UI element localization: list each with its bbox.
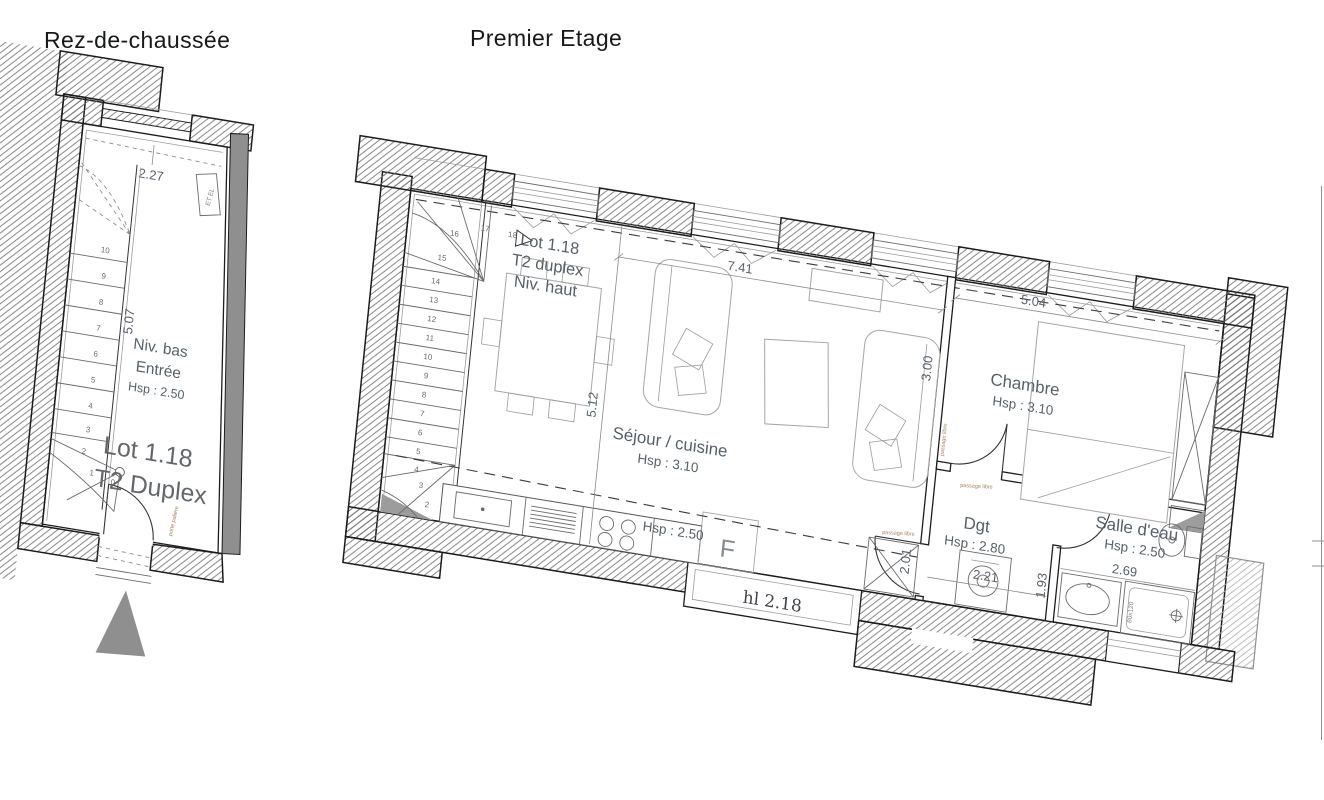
svg-text:13: 13 <box>429 295 439 305</box>
svg-text:16: 16 <box>450 228 460 238</box>
gf-wall-top-left-pier <box>61 94 103 126</box>
svg-text:10: 10 <box>423 352 433 362</box>
direction-arrow <box>96 587 152 661</box>
dim-bath-width: 1.93 <box>1033 572 1050 600</box>
sheet-frame <box>1312 186 1324 740</box>
svg-text:17: 17 <box>480 223 490 233</box>
coffee-table <box>756 333 837 435</box>
sofa <box>851 328 941 490</box>
first-floor-plan: hl 2.18 passage libre passage libre pass… <box>315 136 1292 731</box>
bed <box>1020 322 1184 523</box>
svg-text:10: 10 <box>100 245 110 255</box>
partition-bedroom-south-a <box>936 461 951 471</box>
plan-sheet: Rez-de-chaussée Premier Etage 2.27 ET E <box>0 0 1324 800</box>
threshold-dash <box>98 546 154 558</box>
svg-text:18: 18 <box>508 230 518 240</box>
partition-living-east-end <box>915 595 923 600</box>
svg-text:11: 11 <box>425 333 435 343</box>
fridge-label: F <box>718 534 736 564</box>
svg-text:15: 15 <box>437 253 447 263</box>
threshold-line <box>95 574 150 583</box>
ff-corner-block-nw <box>355 136 486 203</box>
threshold-dash <box>97 555 153 567</box>
svg-text:14: 14 <box>431 276 441 286</box>
threshold-line <box>96 567 151 576</box>
dim-hall-height: 2.01 <box>897 547 914 575</box>
ground-floor-title: Rez-de-chaussée <box>44 27 230 53</box>
dim-bedroom-width: 3.00 <box>918 354 935 382</box>
first-floor-title: Premier Etage <box>470 25 622 51</box>
dim-stair-length: 5.07 <box>120 308 137 336</box>
svg-text:12: 12 <box>427 314 437 324</box>
dim-living-width: 5.12 <box>583 391 600 419</box>
floor-plan-canvas: Rez-de-chaussée Premier Etage 2.27 ET E <box>0 0 1324 800</box>
sofa <box>642 257 734 417</box>
ground-floor-plan: 2.27 ET EL <box>0 37 287 674</box>
